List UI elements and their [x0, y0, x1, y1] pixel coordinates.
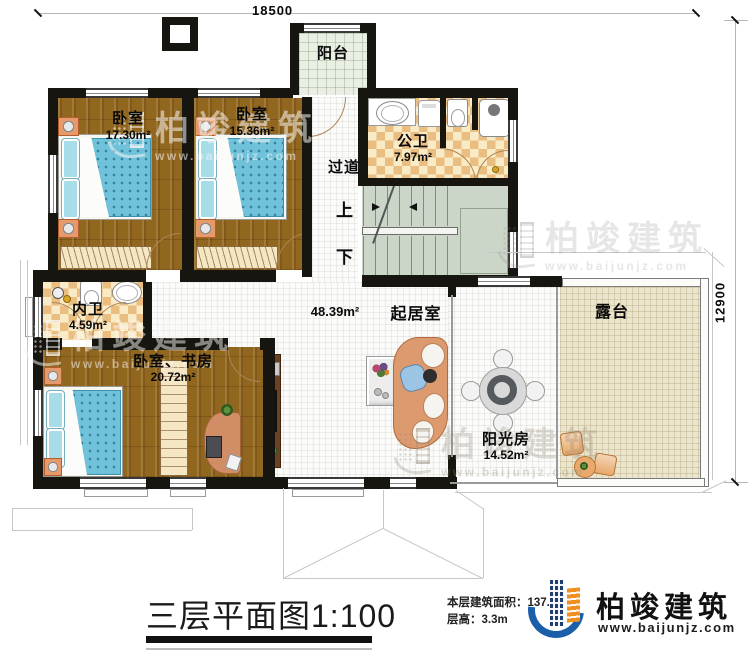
- floor-plan: 柏竣建筑 www.baijunjz.com 柏竣建筑 www.baijunjz.…: [0, 0, 750, 655]
- window: [304, 23, 360, 33]
- stair-arrow-left: [409, 203, 417, 211]
- floor-height-text: 层高：3.3m: [447, 611, 508, 627]
- roof-hip: [383, 528, 484, 579]
- room-label-corridor: 过道: [318, 160, 370, 177]
- window-sill: [292, 489, 364, 497]
- wall: [33, 477, 275, 489]
- wall: [143, 282, 152, 344]
- room-label-bedroom1: 卧室: [98, 111, 158, 128]
- window: [198, 88, 260, 98]
- window-sill: [84, 489, 148, 497]
- stair-arrow-right: [372, 203, 380, 211]
- wall: [358, 88, 518, 98]
- watermark-name: 柏竣建筑: [545, 222, 709, 256]
- nightstand: [58, 117, 79, 136]
- room-label-inner-bath: 内卫: [64, 302, 112, 319]
- balcony-floor: [299, 33, 367, 95]
- dining-table-ring: [487, 375, 517, 405]
- room-area-bedroom2: 15.36m²: [222, 125, 282, 137]
- title-underline-thin: [146, 648, 372, 650]
- wall: [448, 455, 456, 479]
- sink: [376, 101, 409, 125]
- room-area-public-bath: 7.97m²: [383, 151, 443, 163]
- window: [170, 477, 206, 489]
- drawing-title: 三层平面图1:100: [146, 591, 372, 637]
- person-head: [423, 369, 437, 383]
- glass-wall: [450, 482, 560, 484]
- stairs-down-label: 下: [336, 243, 353, 268]
- window: [288, 477, 364, 489]
- bay-outline: [192, 508, 193, 530]
- wall: [290, 23, 299, 95]
- watermark-url: www.baijunjz.com: [545, 259, 709, 273]
- wall: [182, 97, 194, 277]
- room-label-public-bath: 公卫: [385, 134, 441, 151]
- roof-hip: [283, 528, 384, 579]
- wall: [33, 270, 146, 282]
- bed-pillow: [47, 391, 64, 429]
- wall: [180, 270, 276, 282]
- dimension-width: 18500: [252, 3, 293, 18]
- room-label-balcony: 阳台: [303, 46, 363, 63]
- watermark: 柏竣建筑 www.baijunjz.com: [502, 222, 709, 273]
- wardrobe: [196, 246, 278, 269]
- nightstand: [195, 219, 216, 238]
- window: [390, 477, 416, 489]
- window-sill: [170, 489, 206, 497]
- roof-outline: [483, 508, 484, 578]
- dimension-line-right: [735, 21, 736, 482]
- terrace-parapet: [562, 278, 702, 287]
- room-area-inner-bath: 4.59m²: [60, 319, 116, 331]
- chimney-flue: [170, 25, 190, 43]
- terrace-parapet: [557, 478, 705, 487]
- eave-line: [488, 252, 706, 253]
- room-area-bedroom1: 17.30m²: [98, 129, 158, 141]
- table-cup: [374, 388, 382, 396]
- bay-outline: [12, 530, 192, 531]
- terrace-cushion: [592, 452, 617, 477]
- eave-line: [704, 248, 725, 267]
- room-area-bedroom-study: 20.72m²: [143, 371, 203, 383]
- nightstand: [44, 458, 62, 476]
- window: [508, 120, 518, 162]
- stair-treads-lower: [363, 236, 457, 277]
- eave-line: [455, 492, 712, 493]
- terrace-parapet: [700, 278, 709, 487]
- plant: [221, 404, 233, 416]
- roof-ridge: [383, 490, 384, 528]
- table-cup: [382, 392, 389, 399]
- wall: [552, 276, 562, 287]
- bathtub: [479, 99, 510, 137]
- stairs-up-label: 上: [336, 196, 353, 221]
- room-label-terrace: 露台: [584, 304, 640, 322]
- toilet: [447, 99, 468, 127]
- computer-monitor: [206, 436, 222, 458]
- glass-wall: [556, 287, 558, 479]
- nightstand: [195, 117, 216, 136]
- room-label-sunroom: 阳光房: [476, 432, 536, 449]
- wall: [367, 23, 376, 95]
- dimension-height: 12900: [713, 273, 728, 333]
- room-label-bedroom-study: 卧室、书房: [118, 354, 228, 371]
- stair-landing-outline: [460, 208, 508, 274]
- flower-bouquet: [371, 362, 389, 378]
- eave-line: [27, 260, 28, 445]
- terrace-cushion: [560, 431, 585, 457]
- dimension-line-top: [37, 13, 697, 14]
- washing-machine: [418, 100, 441, 127]
- roof-outline: [283, 578, 483, 579]
- nightstand: [58, 219, 79, 238]
- dining-chair: [493, 413, 513, 433]
- roof-hip: [456, 490, 485, 510]
- bay-outline: [12, 508, 13, 530]
- title-underline: [146, 636, 372, 643]
- window: [478, 276, 530, 287]
- bed-pillow: [62, 139, 79, 179]
- window: [33, 390, 43, 436]
- bed-pillow: [199, 179, 216, 219]
- bay-outline: [12, 508, 192, 509]
- bed-pillow: [62, 179, 79, 219]
- window: [508, 232, 518, 268]
- terrace-plant: [580, 462, 588, 470]
- brand-url: www.baijunjz.com: [598, 620, 736, 635]
- brand-logo-tower-blue: [550, 580, 564, 626]
- wall: [358, 178, 518, 186]
- wall: [302, 97, 312, 277]
- room-area-living: 48.39m²: [303, 305, 367, 318]
- bed-pillow: [199, 139, 216, 179]
- eave-line: [20, 260, 21, 445]
- room-label-bedroom2: 卧室: [222, 107, 282, 124]
- dining-chair: [525, 381, 545, 401]
- room-area-sunroom: 14.52m²: [478, 449, 534, 461]
- wall: [263, 338, 275, 489]
- brand-logo-tower-orange: [567, 587, 580, 622]
- window: [80, 477, 146, 489]
- roof-outline: [283, 488, 284, 578]
- wall: [92, 338, 228, 350]
- window: [33, 297, 43, 337]
- window: [48, 155, 58, 213]
- room-label-living: 起居室: [384, 306, 448, 324]
- wardrobe: [60, 246, 152, 269]
- dining-chair: [493, 349, 513, 369]
- brand-logo: 柏竣建筑 www.baijunjz.com: [528, 577, 750, 647]
- glass-wall: [451, 295, 453, 457]
- sink: [112, 281, 142, 304]
- nightstand: [44, 367, 62, 385]
- window: [86, 88, 148, 98]
- dining-chair: [461, 381, 481, 401]
